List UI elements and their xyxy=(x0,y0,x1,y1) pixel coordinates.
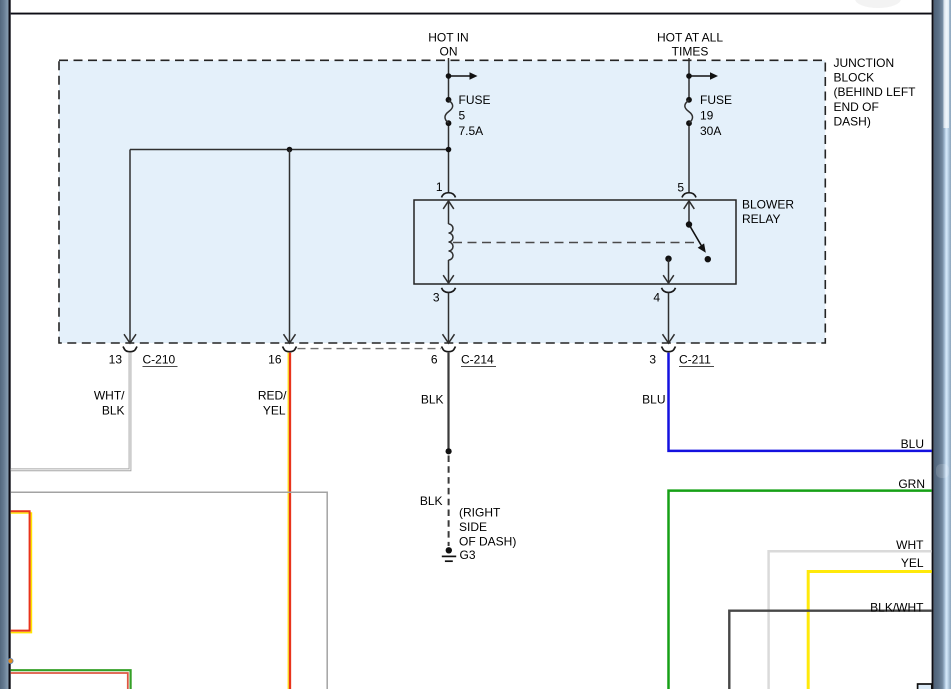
svg-text:3: 3 xyxy=(433,291,440,305)
svg-text:FUSE: FUSE xyxy=(700,93,732,107)
svg-text:BLK: BLK xyxy=(420,494,443,508)
svg-text:5: 5 xyxy=(459,109,466,123)
svg-text:C-214: C-214 xyxy=(461,352,494,366)
svg-text:ON: ON xyxy=(440,45,458,59)
svg-text:DASH): DASH) xyxy=(834,115,871,129)
svg-text:SIDE: SIDE xyxy=(459,520,487,534)
svg-text:16: 16 xyxy=(268,352,282,366)
svg-text:BLOCK: BLOCK xyxy=(834,71,875,85)
svg-text:BLU: BLU xyxy=(642,392,665,406)
svg-text:WHT: WHT xyxy=(896,538,924,552)
svg-text:C-211: C-211 xyxy=(679,352,711,366)
svg-text:RED/: RED/ xyxy=(258,389,287,403)
svg-text:TIMES: TIMES xyxy=(672,45,709,59)
svg-text:6: 6 xyxy=(431,352,438,366)
svg-text:(RIGHT: (RIGHT xyxy=(459,506,501,520)
svg-text:HOT IN: HOT IN xyxy=(428,31,468,45)
svg-text:OF DASH): OF DASH) xyxy=(459,535,516,549)
svg-text:BLK: BLK xyxy=(102,403,125,417)
svg-text:C-210: C-210 xyxy=(143,352,176,366)
svg-text:30A: 30A xyxy=(700,124,721,138)
svg-text:BLK/WHT: BLK/WHT xyxy=(870,601,924,615)
svg-text:3: 3 xyxy=(649,352,656,366)
svg-text:(BEHIND LEFT: (BEHIND LEFT xyxy=(834,85,917,99)
svg-text:RELAY: RELAY xyxy=(742,212,780,226)
svg-text:4: 4 xyxy=(653,291,660,305)
svg-text:G3: G3 xyxy=(460,548,476,562)
svg-text:YEL: YEL xyxy=(263,403,286,417)
svg-text:GRN: GRN xyxy=(898,477,925,491)
svg-text:19: 19 xyxy=(700,109,714,123)
svg-text:JUNCTION: JUNCTION xyxy=(834,56,895,70)
svg-text:WHT/: WHT/ xyxy=(94,389,125,403)
svg-text:FUSE: FUSE xyxy=(459,93,491,107)
svg-text:BLU: BLU xyxy=(901,437,924,451)
svg-text:END OF: END OF xyxy=(834,100,879,114)
svg-text:13: 13 xyxy=(109,352,123,366)
svg-text:BLOWER: BLOWER xyxy=(742,198,794,212)
svg-text:1: 1 xyxy=(436,180,443,194)
svg-text:5: 5 xyxy=(677,181,684,195)
svg-text:YEL: YEL xyxy=(901,556,924,570)
svg-text:BLK: BLK xyxy=(421,392,444,406)
svg-text:7.5A: 7.5A xyxy=(459,124,484,138)
svg-text:HOT AT ALL: HOT AT ALL xyxy=(657,31,723,45)
